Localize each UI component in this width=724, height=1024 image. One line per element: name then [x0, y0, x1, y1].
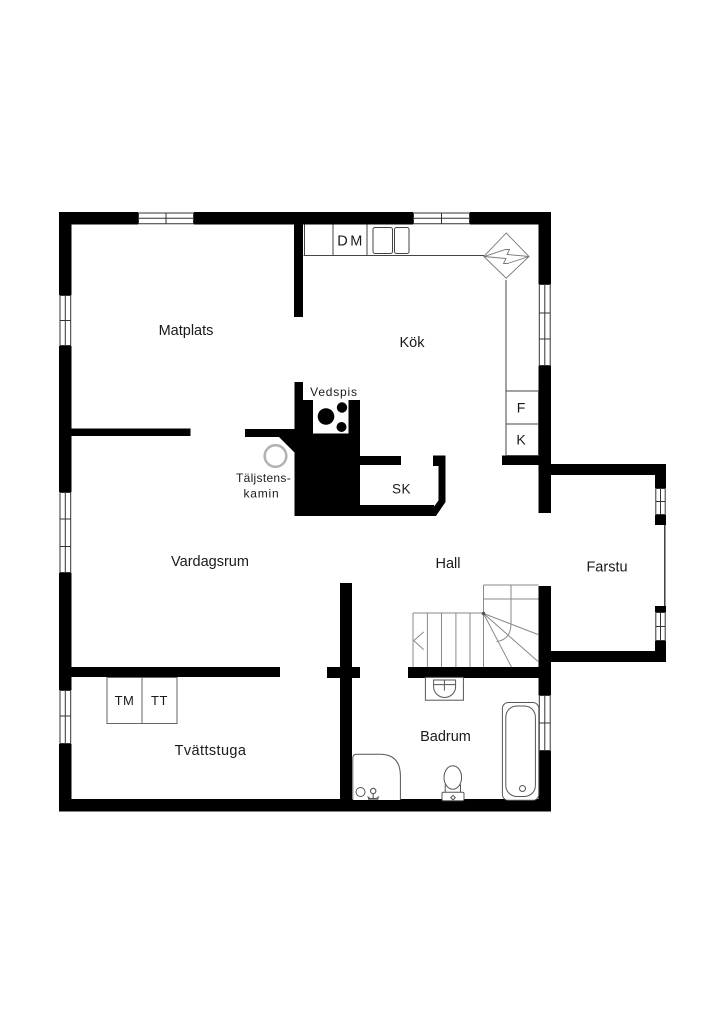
- svg-text:Badrum: Badrum: [420, 729, 471, 745]
- svg-text:Vardagsrum: Vardagsrum: [171, 554, 249, 570]
- svg-text:Kök: Kök: [400, 335, 426, 351]
- svg-text:TM: TM: [115, 693, 135, 708]
- svg-text:F: F: [517, 400, 526, 416]
- svg-text:kamin: kamin: [243, 487, 279, 501]
- svg-text:Täljstens-: Täljstens-: [236, 471, 291, 485]
- svg-text:Tvättstuga: Tvättstuga: [175, 743, 247, 759]
- svg-text:Vedspis: Vedspis: [310, 385, 358, 399]
- svg-text:K: K: [516, 432, 526, 448]
- svg-text:Matplats: Matplats: [159, 323, 214, 339]
- svg-text:DM: DM: [337, 234, 365, 250]
- svg-text:SK: SK: [392, 482, 411, 497]
- svg-text:Farstu: Farstu: [586, 560, 627, 576]
- svg-text:TT: TT: [151, 693, 168, 708]
- svg-text:Hall: Hall: [436, 556, 461, 572]
